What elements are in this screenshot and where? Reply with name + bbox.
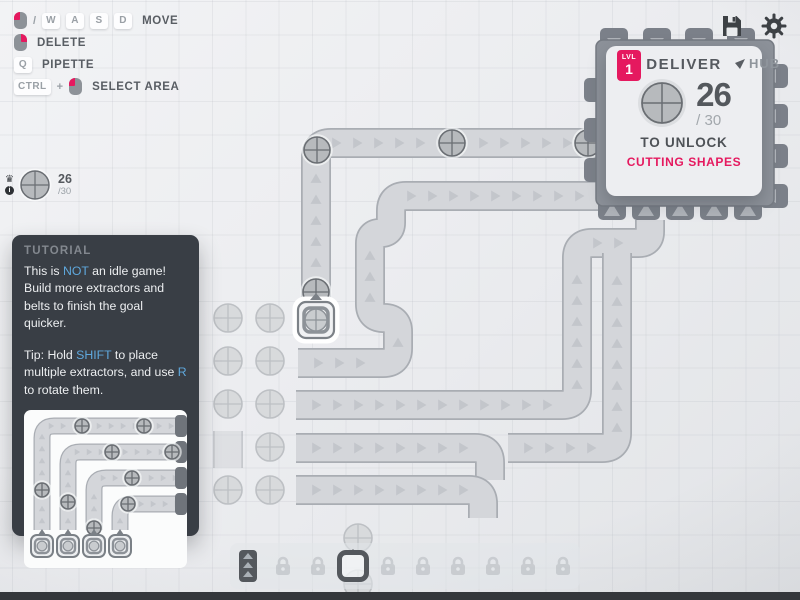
- conveyor-belt[interactable]: [296, 485, 483, 519]
- game-viewport: { "colors": { "accent_pink": "#e5195f", …: [0, 0, 800, 600]
- cursor-icon: [734, 58, 746, 70]
- hint-label: SELECT AREA: [92, 81, 179, 93]
- lock-icon: [448, 554, 468, 578]
- tutorial-paragraph-2: Tip: Hold SHIFT to place multiple extrac…: [24, 347, 187, 399]
- pinned-amount: 26: [58, 173, 72, 186]
- lock-icon: [308, 554, 328, 578]
- hint-label: DELETE: [37, 37, 86, 49]
- toolbar-slot-locked[interactable]: [545, 543, 580, 589]
- key-s: S: [90, 13, 108, 29]
- belt-item-circle: [134, 416, 154, 436]
- resource-node-circle[interactable]: [256, 390, 284, 418]
- toolbar-slot-locked[interactable]: [265, 543, 300, 589]
- tutorial-panel: TUTORIAL This is NOT an idle game! Build…: [12, 235, 199, 536]
- gear-icon: [761, 13, 787, 39]
- deliver-shape-icon: [637, 78, 687, 128]
- hint-delete: DELETE: [14, 34, 179, 51]
- resource-node-circle[interactable]: [256, 347, 284, 375]
- lock-icon: [273, 554, 293, 578]
- conveyor-belt[interactable]: [298, 191, 602, 369]
- toolbar-slot-locked[interactable]: [440, 543, 475, 589]
- extractor-building[interactable]: [295, 293, 337, 341]
- lock-icon: [518, 554, 538, 578]
- separator: +: [57, 81, 63, 93]
- resource-node-circle[interactable]: [214, 347, 242, 375]
- tutorial-paragraph-1: This is NOT an idle game! Build more ext…: [24, 263, 187, 333]
- resource-node-circle[interactable]: [256, 476, 284, 504]
- info-icon[interactable]: i: [5, 186, 14, 195]
- floppy-disk-icon: [720, 14, 744, 38]
- belt-item-circle: [72, 416, 92, 436]
- goal-amount: / 30: [696, 113, 731, 128]
- belt-item-circle: [118, 494, 138, 514]
- toolbar-slot-locked[interactable]: [405, 543, 440, 589]
- toolbar-slot-extractor-selected[interactable]: [335, 543, 370, 589]
- toolbar-slot-locked[interactable]: [300, 543, 335, 589]
- mouse-left-icon: [14, 12, 27, 29]
- resource-node-circle[interactable]: [214, 390, 242, 418]
- conveyor-belt[interactable]: [296, 220, 650, 411]
- belt-item-circle: [301, 134, 333, 166]
- building-toolbar[interactable]: [230, 543, 580, 589]
- belt-item-circle: [122, 468, 142, 488]
- mouse-left-icon: [69, 78, 82, 95]
- belt-item-circle: [58, 492, 78, 512]
- extractor-building: [109, 529, 131, 557]
- toolbar-slot-belt[interactable]: [230, 543, 265, 589]
- resource-node-circle[interactable]: [214, 476, 242, 504]
- mouse-right-icon: [14, 34, 27, 51]
- lock-icon: [483, 554, 503, 578]
- hub-map-label: HUB: [734, 56, 780, 71]
- pinned-goal: ♛ i 26 /30: [5, 167, 72, 203]
- unlock-text: TO UNLOCK: [606, 135, 762, 150]
- lock-icon: [378, 554, 398, 578]
- toolbar-slot-locked[interactable]: [510, 543, 545, 589]
- hint-select-area: CTRL + SELECT AREA: [14, 78, 179, 95]
- key-q: Q: [14, 57, 32, 73]
- toolbar-slot-locked[interactable]: [370, 543, 405, 589]
- key-d: D: [114, 13, 132, 29]
- crown-icon: ♛: [5, 175, 14, 185]
- lock-icon: [553, 554, 573, 578]
- belt-item-circle: [436, 127, 468, 159]
- resource-node-circle[interactable]: [214, 304, 242, 332]
- pinned-goal-total: /30: [58, 187, 72, 197]
- extractor-icon: [337, 550, 369, 582]
- hub-label-text: HUB: [749, 56, 780, 71]
- level-number: 1: [625, 62, 633, 77]
- tutorial-illustration: [24, 410, 187, 568]
- lock-icon: [413, 554, 433, 578]
- key-ctrl: CTRL: [14, 79, 51, 95]
- keybinding-hints: / W A S D MOVE DELETE Q PIPETTE CTRL + S…: [14, 12, 179, 95]
- level-badge: LVL 1: [617, 50, 641, 81]
- tutorial-title: TUTORIAL: [24, 245, 187, 257]
- separator: /: [33, 15, 36, 27]
- belt-item-circle: [102, 442, 122, 462]
- reward-text: CUTTING SHAPES: [606, 155, 762, 169]
- extractor-building: [57, 529, 79, 557]
- key-a: A: [66, 13, 84, 29]
- conveyor-belt[interactable]: [296, 443, 490, 481]
- settings-button[interactable]: [760, 12, 788, 40]
- hint-label: MOVE: [142, 15, 178, 27]
- resource-node-circle[interactable]: [256, 304, 284, 332]
- conveyor-belt[interactable]: [311, 138, 601, 305]
- goal-shape-icon: [17, 167, 53, 203]
- belt-icon: [237, 549, 259, 583]
- hint-move: / W A S D MOVE: [14, 12, 179, 29]
- key-w: W: [42, 13, 60, 29]
- save-button[interactable]: [718, 12, 746, 40]
- hint-label: PIPETTE: [42, 59, 94, 71]
- extractor-building: [31, 529, 53, 557]
- belt-item-circle: [162, 442, 182, 462]
- toolbar-slot-locked[interactable]: [475, 543, 510, 589]
- hint-pipette: Q PIPETTE: [14, 56, 179, 73]
- bottom-border: [0, 592, 800, 600]
- belt-item-circle: [32, 480, 52, 500]
- delivered-amount: 26: [696, 78, 731, 111]
- resource-node-circle[interactable]: [256, 433, 284, 461]
